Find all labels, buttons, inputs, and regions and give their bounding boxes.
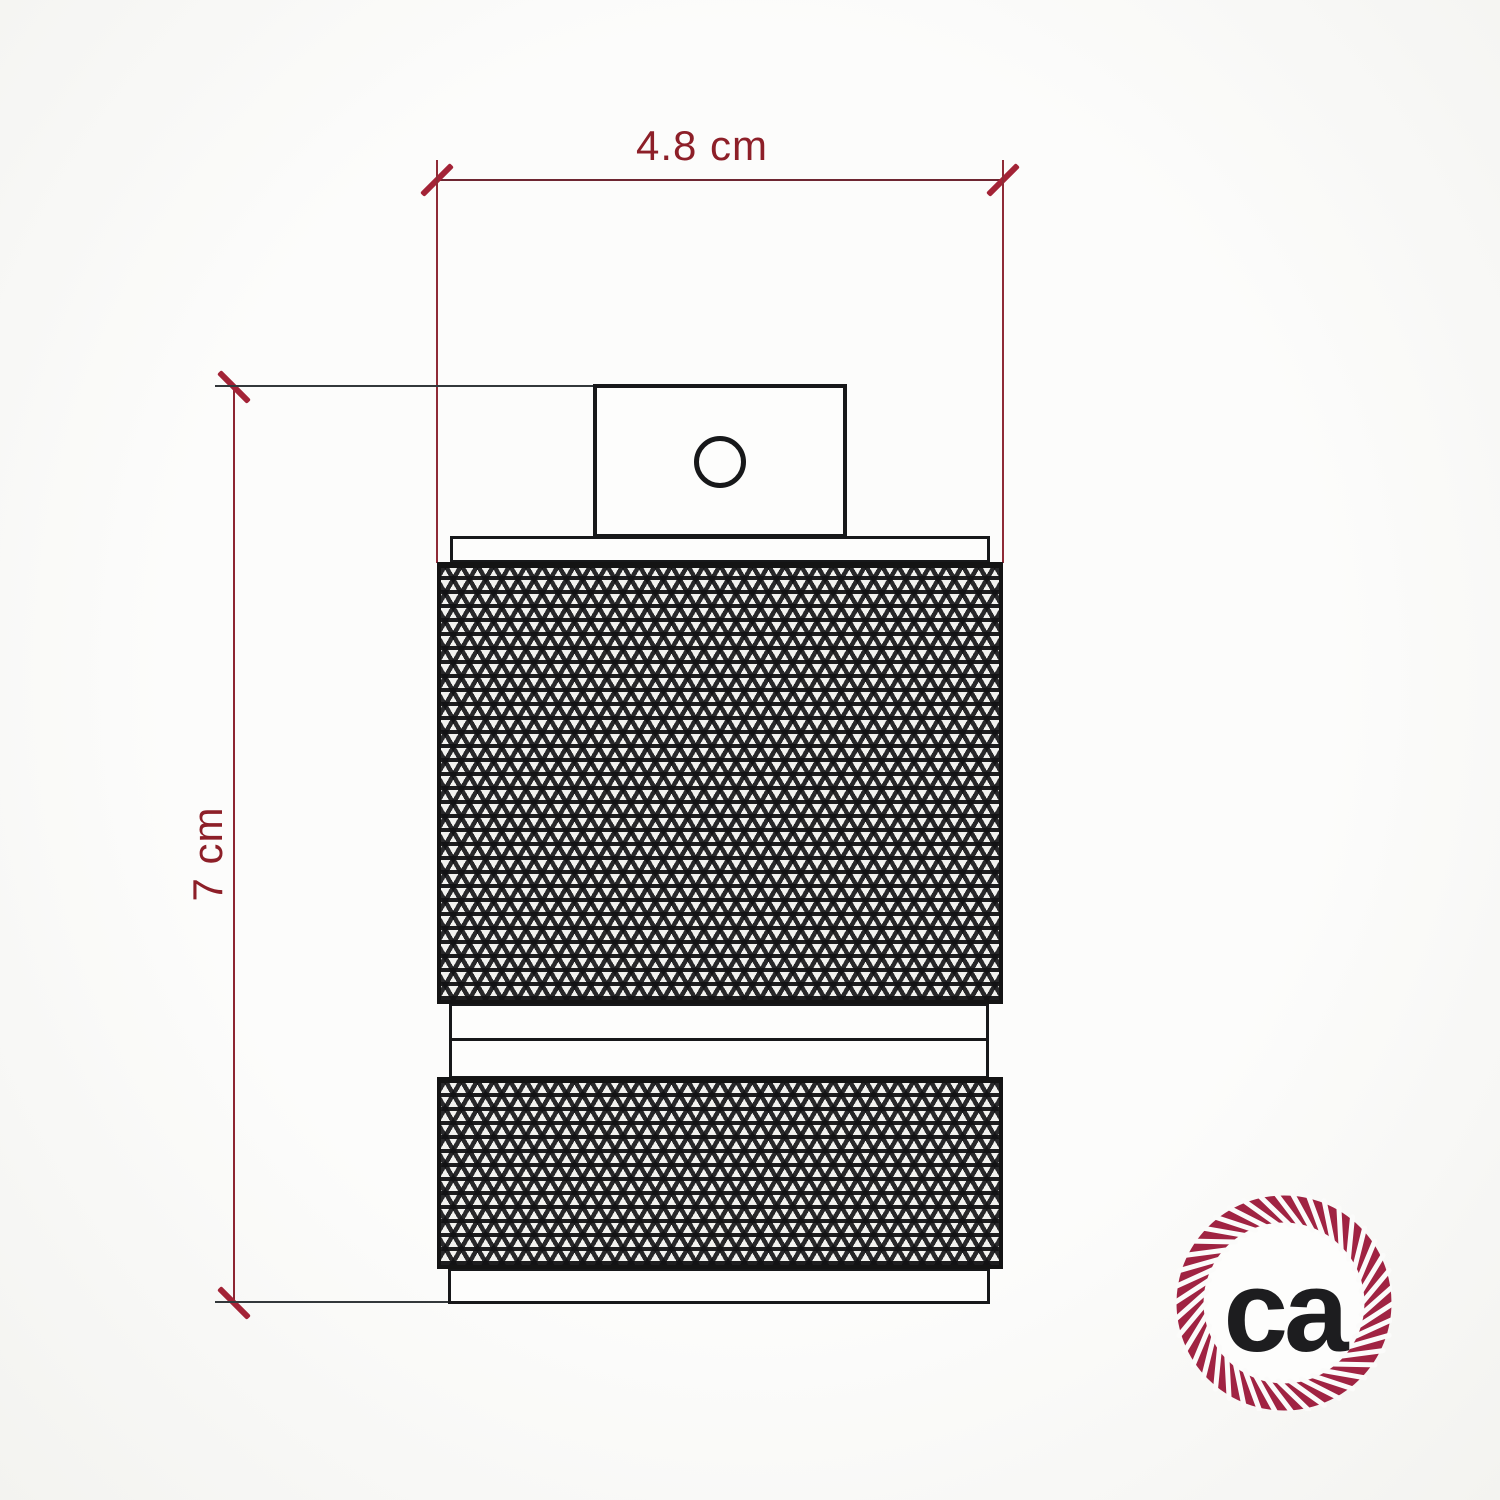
width-dimension-line bbox=[437, 179, 1003, 181]
technical-drawing-canvas: 4.8 cm 7 cm ca bbox=[0, 0, 1500, 1500]
width-extension-line-left bbox=[436, 160, 438, 563]
width-dimension-label: 4.8 cm bbox=[592, 122, 812, 170]
ring-divider-line bbox=[451, 1038, 987, 1041]
knurled-ring-lower bbox=[437, 1077, 1003, 1269]
height-extension-line-top bbox=[215, 385, 595, 387]
knurled-body-upper bbox=[437, 562, 1003, 1004]
height-dimension-line bbox=[233, 387, 235, 1303]
socket-collar-plate bbox=[450, 536, 990, 563]
height-extension-line-bottom bbox=[215, 1301, 450, 1303]
cable-entry-hole bbox=[694, 436, 746, 488]
height-dimension-label: 7 cm bbox=[184, 774, 232, 934]
smooth-ring-middle bbox=[449, 1003, 989, 1079]
smooth-ring-bottom bbox=[448, 1268, 990, 1304]
brand-logo: ca bbox=[1176, 1195, 1392, 1411]
logo-monogram: ca bbox=[1176, 1203, 1392, 1419]
width-extension-line-right bbox=[1002, 160, 1004, 563]
